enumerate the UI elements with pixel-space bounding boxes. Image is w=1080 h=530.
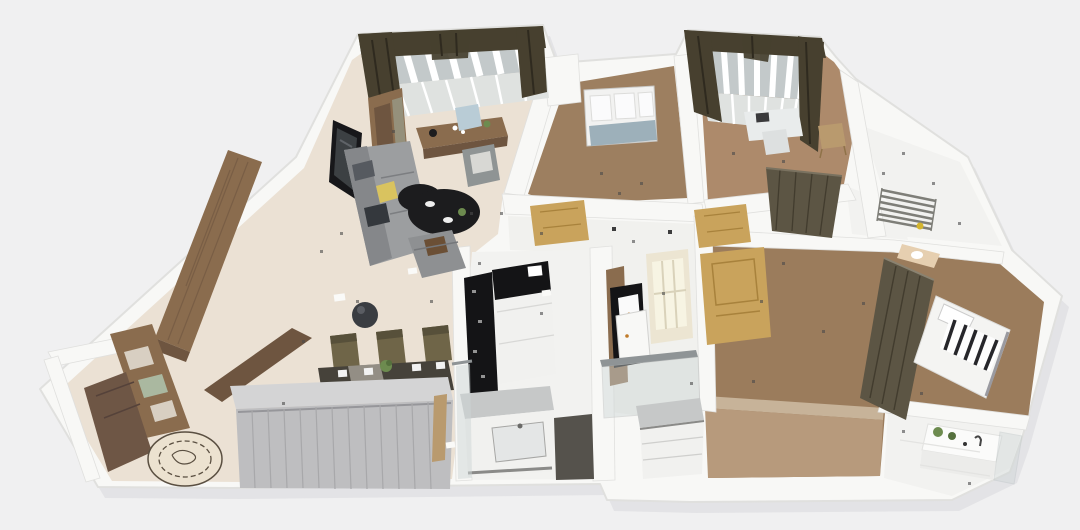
bedroom-door[interactable] bbox=[700, 247, 771, 345]
bedroom-right-floor-light bbox=[705, 408, 883, 478]
fridge-cabinet[interactable] bbox=[492, 260, 556, 384]
vanity-plant bbox=[933, 427, 943, 437]
desk-lamp bbox=[429, 129, 437, 137]
floorplan-canvas bbox=[0, 0, 1080, 530]
round-rug[interactable] bbox=[148, 432, 222, 486]
table-plant bbox=[458, 208, 466, 216]
fridge-handle bbox=[625, 334, 629, 338]
gray-sliding-wardrobe[interactable] bbox=[230, 377, 453, 489]
wardrobe-ladder bbox=[432, 394, 447, 462]
gray-chair[interactable] bbox=[462, 144, 500, 187]
bedroom-top-wardrobe[interactable] bbox=[766, 168, 842, 238]
yellow-duck[interactable] bbox=[917, 223, 924, 230]
glazed-door[interactable] bbox=[646, 249, 693, 344]
kitchen-dark-floor-band bbox=[554, 414, 594, 480]
kitchen-counter[interactable] bbox=[460, 386, 554, 477]
desk-plant bbox=[484, 121, 491, 128]
shoe-cabinet[interactable] bbox=[636, 398, 704, 479]
hall-fridge[interactable] bbox=[616, 310, 650, 362]
pendant-lamp[interactable] bbox=[352, 302, 378, 328]
vanity-plant bbox=[948, 432, 956, 440]
wall-pillar bbox=[543, 54, 581, 106]
small-sink bbox=[911, 251, 923, 259]
hall-door-right[interactable] bbox=[694, 204, 751, 248]
floorplan-render bbox=[0, 0, 1080, 530]
study-window[interactable] bbox=[584, 86, 657, 146]
white-chair[interactable] bbox=[762, 129, 790, 155]
faucet bbox=[518, 424, 523, 429]
hall-door-left[interactable] bbox=[530, 200, 589, 246]
